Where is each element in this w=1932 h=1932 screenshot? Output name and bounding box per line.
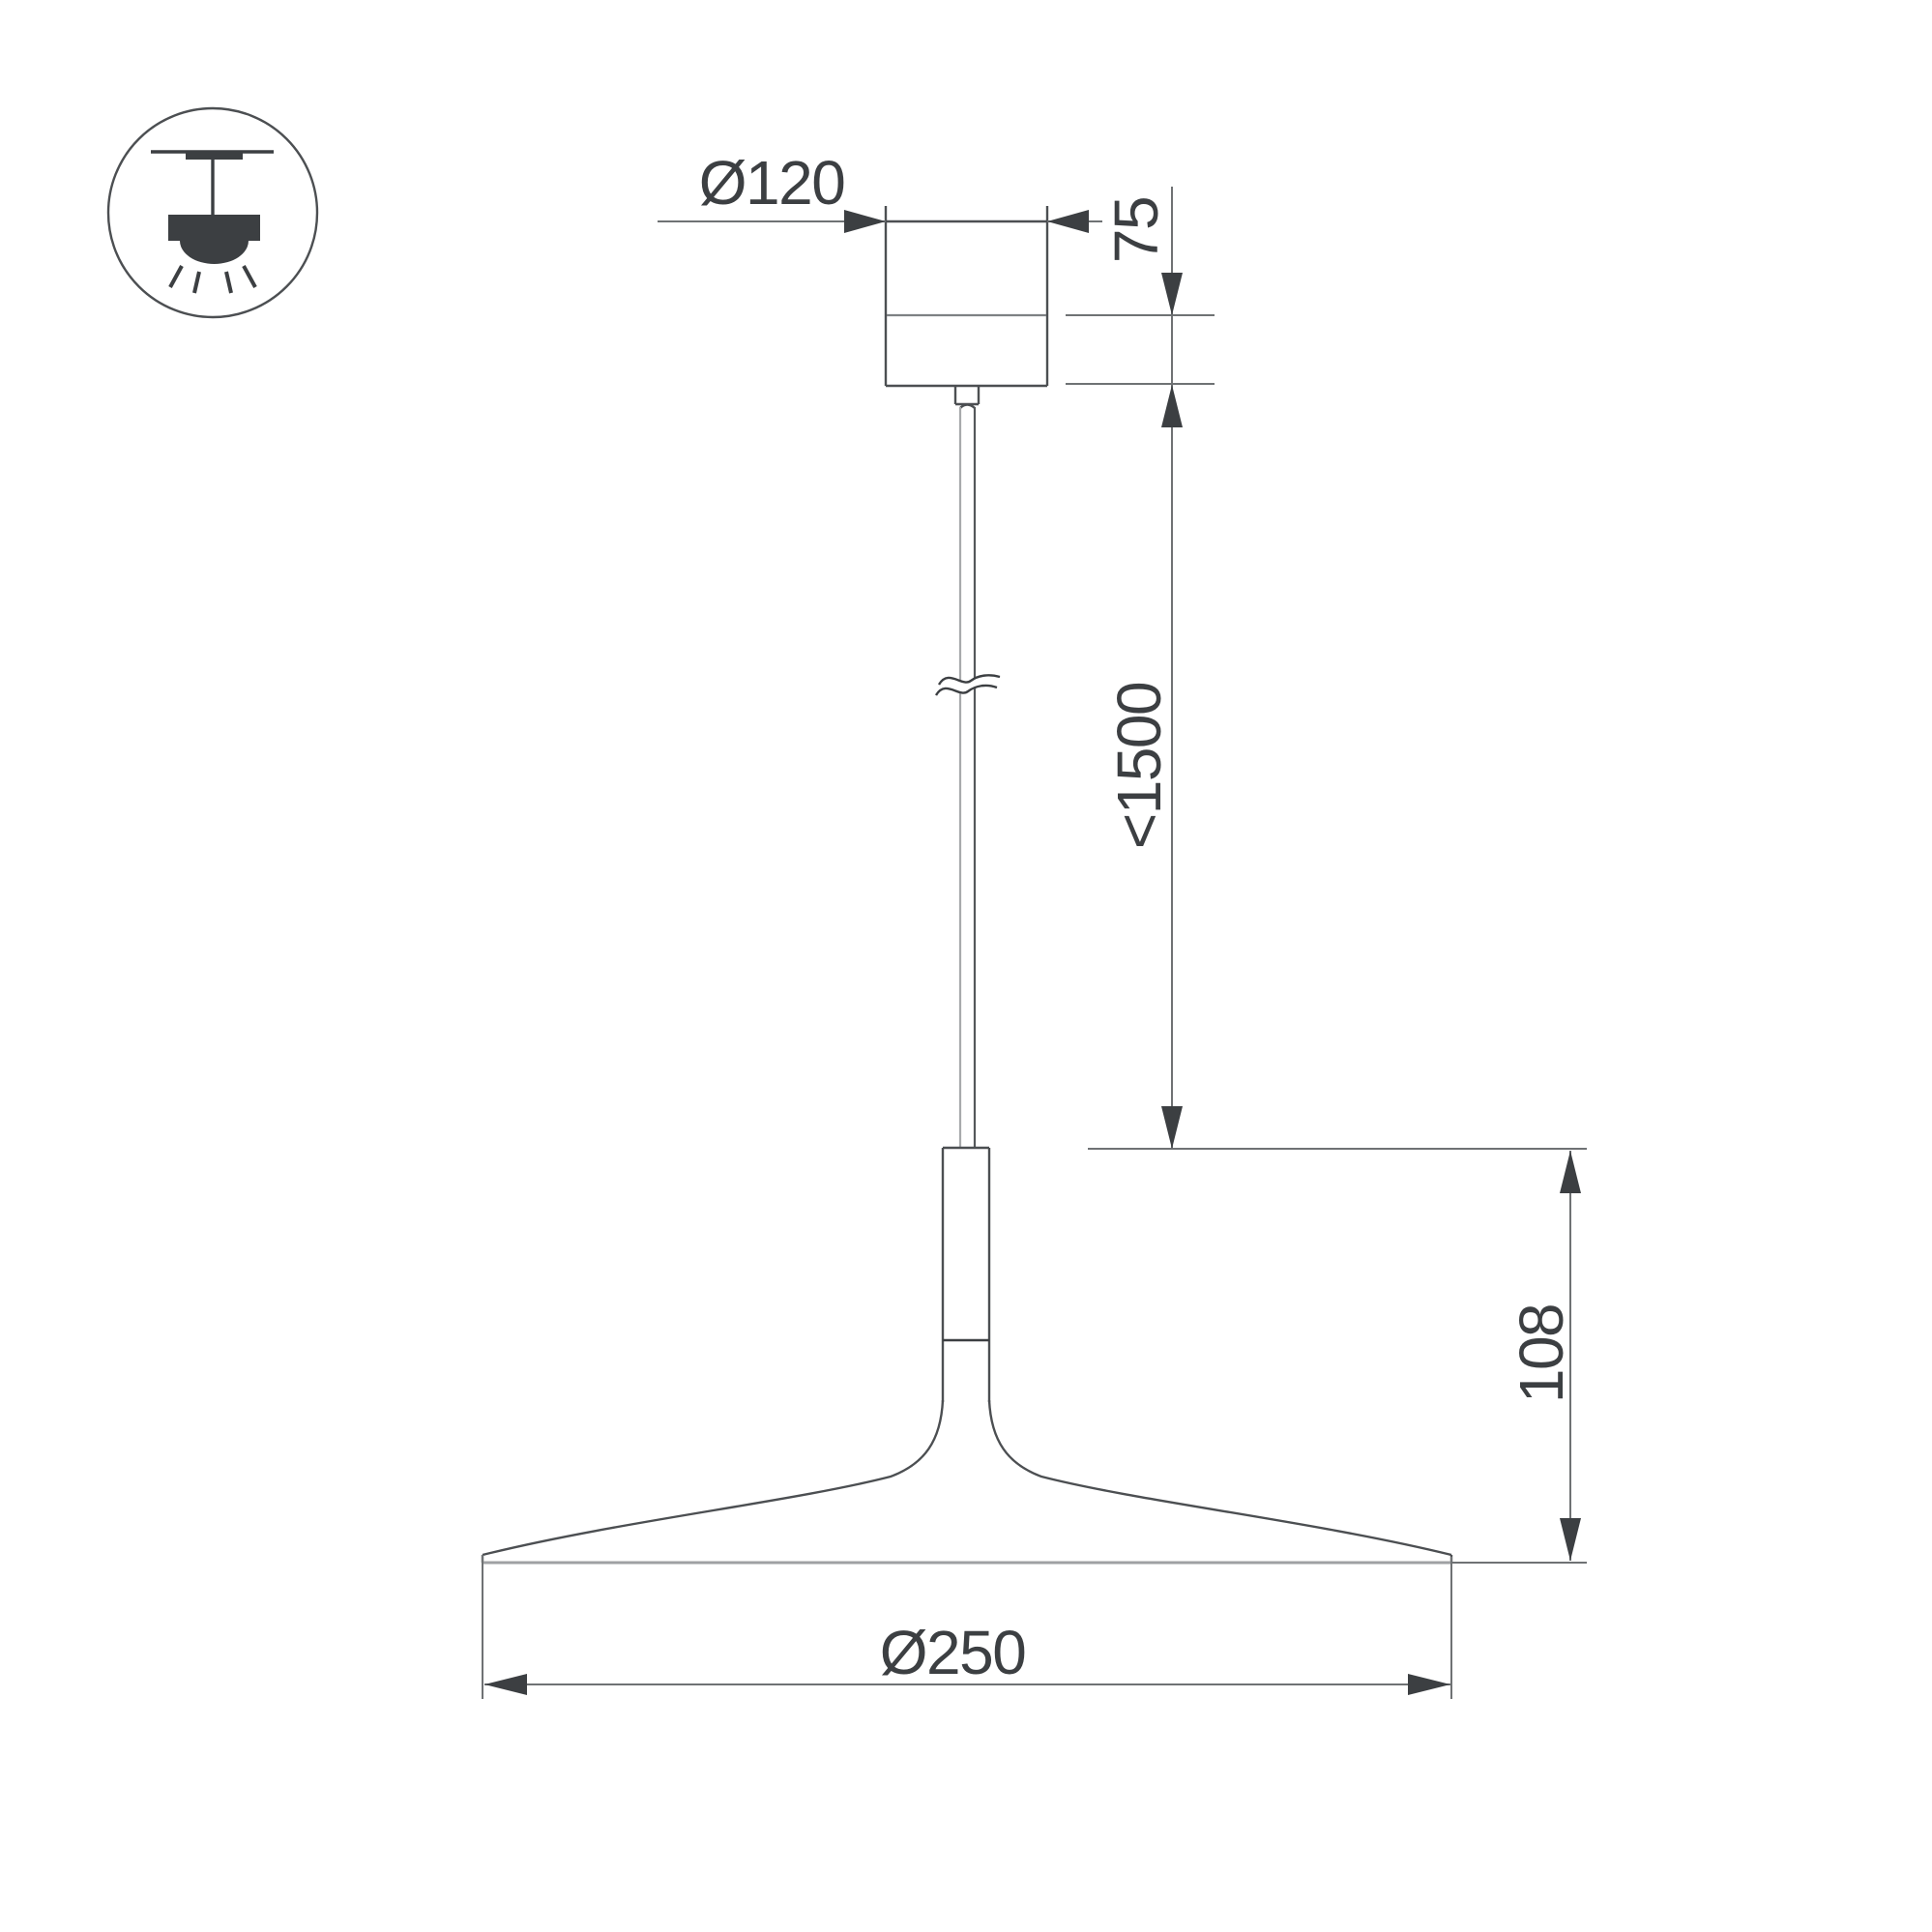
dim-shade-diameter-label: Ø250	[880, 1618, 1026, 1687]
arrowhead-down	[1560, 1518, 1581, 1561]
dimension-drawing: Ø120 75 <1500 108 Ø250	[0, 0, 1932, 1932]
arrowhead-right	[844, 210, 886, 233]
dim-shade-height-label: 108	[1507, 1304, 1576, 1403]
canopy-outline	[886, 206, 1047, 408]
arrowhead-up	[1161, 385, 1183, 427]
suspension-cable	[936, 407, 1000, 1148]
cable-gland	[955, 386, 979, 404]
shade-right-profile	[989, 1400, 1451, 1555]
icon-light-rays	[170, 266, 255, 293]
shade-left-profile	[483, 1400, 943, 1555]
cable-gland-arc	[960, 405, 975, 409]
icon-canopy-bar	[186, 153, 243, 160]
dim-canopy-diameter-label: Ø120	[699, 148, 845, 218]
dim-suspension-length: <1500	[1088, 683, 1587, 1149]
arrowhead-right	[1408, 1674, 1450, 1695]
cable-break-symbol	[936, 675, 1000, 695]
arrowhead-up	[1560, 1151, 1581, 1193]
icon-shade-rect	[168, 215, 260, 241]
dim-suspension-length-label: <1500	[1104, 683, 1174, 849]
dim-canopy-height-label: 75	[1101, 197, 1171, 263]
arrowhead-left	[484, 1674, 527, 1695]
icon-bulb-semicircle	[180, 241, 249, 264]
dim-shade-diameter: Ø250	[483, 1555, 1451, 1699]
arrowhead-left	[1047, 210, 1089, 233]
arrowhead-down	[1161, 273, 1183, 315]
shade-outline	[483, 1148, 1452, 1563]
arrowhead-down	[1161, 1106, 1183, 1149]
pendant-mount-icon	[108, 108, 317, 317]
dim-canopy-height: 75	[1066, 187, 1215, 1149]
dim-shade-height: 108	[1452, 1151, 1587, 1563]
